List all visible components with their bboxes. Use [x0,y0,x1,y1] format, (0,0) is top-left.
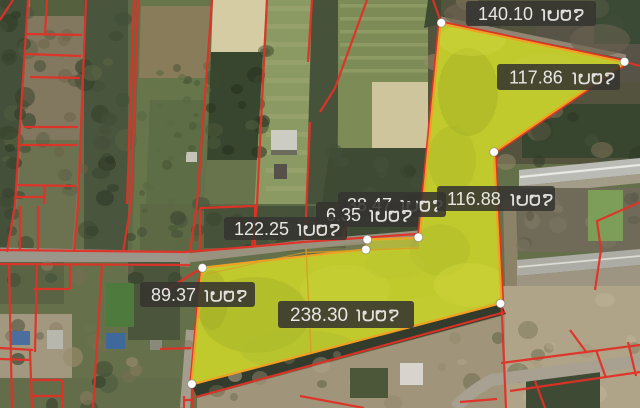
svg-text:117.86: 117.86 [509,68,563,88]
svg-text:89.37: 89.37 [151,285,196,305]
svg-text:238.30: 238.30 [290,305,348,326]
svg-text:140.10: 140.10 [478,4,533,24]
svg-text:116.88: 116.88 [447,189,501,209]
svg-text:122.25: 122.25 [234,219,289,239]
